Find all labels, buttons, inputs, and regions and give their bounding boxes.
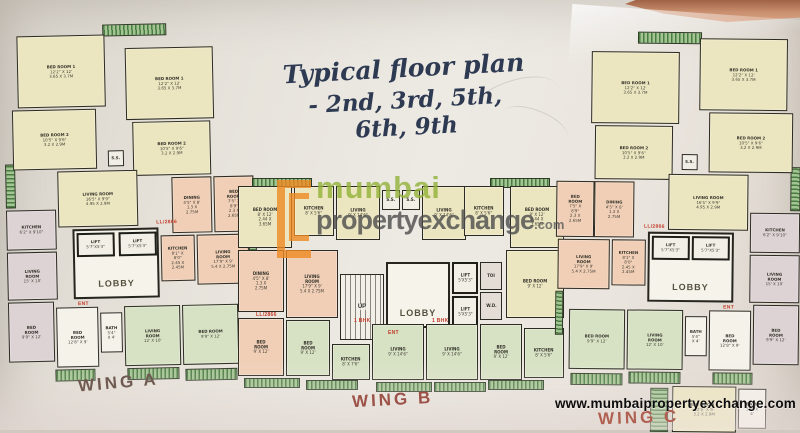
- room-label: BED ROOM 210'5" X 9'6"3.2 X 2.9M: [730, 135, 771, 150]
- room-bed-room: BED ROOM12'8" X 9': [56, 307, 99, 368]
- lift-label: LIFT5'7"X5'3": [128, 239, 147, 249]
- room-label: BED ROOM12'8" X 9': [720, 333, 740, 348]
- room-label: LIVING9' X 14'6": [434, 208, 455, 218]
- lift-shaft: LIFT5'7"X5'3": [692, 236, 730, 260]
- annotation-ent: ENT: [723, 304, 734, 310]
- room-label: BED ROOM8' X 12'2.44 X 3.65M: [252, 207, 278, 226]
- service-shaft-label: S.S.: [685, 160, 694, 165]
- service-shaft: S.S.: [382, 190, 400, 210]
- room-living-room: LIVING ROOM17'9" X 9'5.4 X 2.75M: [286, 250, 338, 318]
- annotation-bhk: 1 BHK: [354, 318, 371, 324]
- wing-c-plan: BED ROOM 112'2" X 12'3.65 X 3.7MBED ROOM…: [554, 25, 800, 433]
- balcony: [488, 380, 544, 390]
- balcony: [434, 382, 486, 392]
- room-label: LIVING ROOM12' X 10': [139, 328, 166, 343]
- service-shaft: S.S.: [682, 154, 698, 170]
- lift-shaft: LIFT5'7"X5'3": [652, 236, 690, 260]
- room-label: BED ROOM 112'2" X 12'3.65 X 3.7M: [722, 67, 765, 82]
- room-label: BED ROOM9' X 12': [521, 279, 549, 289]
- balcony: [790, 167, 800, 211]
- room-bed-room-1: BED ROOM 112'2" X 12'3.65 X 3.7M: [125, 46, 214, 120]
- room-bed-room: BED ROOM9'9" X 12': [753, 305, 800, 365]
- room-label: DINING4'5" X 8'1.3 X 2.75M: [250, 271, 272, 290]
- balcony: [712, 372, 752, 384]
- balcony: [5, 164, 16, 208]
- dry-area: W.D.: [480, 292, 502, 320]
- service-shaft-label: S.S.: [111, 156, 120, 161]
- room-bath: BATH5'4" X 4': [685, 316, 707, 356]
- website-url: www.mumbaipropertyexchange.com: [555, 396, 796, 411]
- lobby-label: LOBBY: [400, 308, 437, 318]
- room-bed-room: BED ROOM9'9" X 12': [182, 304, 239, 365]
- balcony: [244, 378, 300, 388]
- room-label: BED ROOM 112'2" X 12'3.65 X 3.7M: [614, 80, 657, 95]
- room-label: LIVING ROOM17'9" X 9'5.4 X 2.75M: [571, 254, 596, 273]
- balcony: [628, 371, 680, 384]
- room-dining: DINING4'5" X 8'1.3 X 2.75M: [594, 181, 635, 237]
- service-shaft: S.S.: [108, 150, 124, 166]
- room-label: BED ROOM9' X 12': [250, 340, 272, 354]
- toilet: TOI: [480, 262, 502, 290]
- room-label: LIVING ROOM16'5" X 9'9"4.95 X 2.9M: [689, 195, 728, 210]
- lift-label: LIFT5'7"X5'3": [701, 243, 720, 253]
- lobby-label: LOBBY: [672, 282, 709, 292]
- room-living-room: LIVING ROOM16'5" X 9'9"4.95 X 2.9M: [668, 174, 749, 231]
- room-label: KITCHEN8'1" X 8'0"2.45 X 2.45M: [619, 250, 639, 274]
- tiny-room-label: TOI: [486, 274, 496, 279]
- room-label: BED ROOM 210'5" X 9'6"3.2 X 2.9M: [615, 145, 653, 160]
- room-living-room: LIVING ROOM12' X 10': [124, 305, 181, 366]
- wing-b-label: WING B: [352, 388, 434, 412]
- room-label: LIVING9' X 14'6": [386, 347, 411, 357]
- annotation-bhk: 1 BHK: [432, 318, 449, 324]
- annotation-ll: LL/2866: [644, 224, 665, 230]
- room-label: KITCHEN8' X 7'6": [341, 357, 361, 367]
- room-label: KITCHEN6'2" X 9'10": [19, 225, 43, 235]
- room-living-room: LIVING ROOM16'5" X 9'9"4.95 X 2.9M: [57, 170, 138, 228]
- room-bed-room: BED ROOM7'5" X 8'9"2.3 X 2.65M: [556, 181, 595, 237]
- room-bed-room-2: BED ROOM 210'5" X 9'6"3.2 X 2.9M: [12, 109, 97, 171]
- lift-shaft: LIFT5'X5'3": [452, 262, 478, 294]
- service-shaft-label: S.S.: [407, 198, 416, 203]
- room-kitchen: KITCHEN8' X 5'6": [294, 186, 334, 236]
- room-label: BED ROOM8' X 12'2.44 X 3.65M: [524, 207, 550, 226]
- room-kitchen: KITCHEN8' X 7'6": [332, 344, 370, 380]
- room-living: LIVING9' X 14'6": [426, 324, 478, 380]
- room-bed-room: BED ROOM9'9" X 12': [8, 302, 55, 363]
- room-label: BED ROOM9'9" X 12': [583, 334, 610, 344]
- room-bed-room-2: BED ROOM 210'5" X 9'6"3.2 X 2.9M: [709, 112, 794, 173]
- room-label: LIVING ROOM17'9" X 9'5.4 X 2.75M: [300, 274, 325, 293]
- annotation-ent: ENT: [388, 330, 399, 336]
- room-bath: BATH5'4" X 4': [100, 312, 123, 352]
- annotation-ent: ENT: [78, 301, 89, 307]
- room-dining: DINING4'5" X 8'1.3 X 2.75M: [171, 176, 212, 233]
- balcony: [102, 23, 166, 36]
- balcony: [306, 380, 358, 390]
- room-label: LIVING9' X 14'6": [440, 347, 465, 357]
- room-label: BED ROOM9' X 12': [298, 341, 319, 355]
- room-bed-room-2: BED ROOM 210'5" X 9'6"3.2 X 2.9M: [132, 120, 211, 176]
- room-label: LIVING ROOM15' X 10': [20, 269, 44, 284]
- room-label: KITCHEN8' X 5'6": [534, 348, 554, 358]
- room-label: BED ROOM7'5" X 8'9"2.3 X 2.65M: [566, 194, 584, 223]
- annotation-ll: LL/2866: [156, 219, 177, 225]
- service-shaft: S.S.: [402, 190, 420, 210]
- room-label: BED ROOM 210'5" X 9'6"3.2 X 2.9M: [34, 132, 75, 147]
- room-bed-room-1: BED ROOM 112'2" X 12'3.65 X 3.7M: [699, 38, 788, 111]
- lift-label: LIFT5'X5'3": [458, 273, 472, 283]
- plan-title: Typical floor plan - 2nd, 3rd, 5th, 6th,…: [278, 48, 532, 148]
- room-bed-room-2: BED ROOM 210'5" X 9'6"3.2 X 2.9M: [595, 125, 674, 180]
- stairs-up-label: UP: [356, 304, 368, 310]
- room-living: LIVING9' X 14'6": [422, 186, 466, 240]
- room-label: BED ROOM12'8" X 9': [68, 330, 88, 345]
- plan-title-line2: - 2nd, 3rd, 5th, 6th, 9th: [280, 80, 532, 147]
- room-living-room: LIVING ROOM15' X 10': [749, 255, 799, 304]
- room-label: LIVING ROOM15' X 10': [762, 272, 786, 287]
- room-living: LIVING9' X 14'6": [336, 186, 380, 240]
- room-label: BATH5'4" X 4': [105, 325, 117, 340]
- room-label: LIVING9' X 14'6": [348, 208, 369, 218]
- room-bed-room: BED ROOM9' X 12': [238, 318, 284, 376]
- balcony: [570, 373, 622, 386]
- room-living-room: LIVING ROOM17'9" X 9'5.4 X 2.75M: [557, 239, 610, 290]
- room-bed-room-1: BED ROOM 112'2" X 12'3.65 X 3.7M: [16, 35, 105, 109]
- room-kitchen: KITCHEN8'1" X 8'0"2.45 X 2.45M: [611, 239, 645, 285]
- room-label: LIVING ROOM12' X 10': [641, 332, 668, 347]
- room-kitchen: KITCHEN6'2" X 9'10": [6, 210, 57, 251]
- room-label: KITCHEN6'2" X 9'10": [763, 228, 787, 238]
- service-shaft-label: S.S.: [387, 198, 396, 203]
- room-label: KITCHEN8' X 5'6": [474, 206, 494, 216]
- room-label: BED ROOM9'9" X 12': [197, 329, 224, 339]
- lift-shaft: LIFT5'7"X5'3": [76, 232, 114, 257]
- room-bed-room-1: BED ROOM 112'2" X 12'3.65 X 3.7M: [591, 51, 680, 124]
- room-label: LIVING ROOM16'5" X 9'9"4.95 X 2.9M: [78, 191, 117, 206]
- room-label: KITCHEN8' X 5'6": [304, 206, 324, 216]
- room-bed-room: BED ROOM9' X 12': [286, 320, 330, 376]
- photo-paper: Typical floor plan - 2nd, 3rd, 5th, 6th,…: [0, 0, 800, 430]
- balcony: [638, 32, 702, 45]
- balcony: [185, 368, 237, 381]
- lift-label: LIFT5'7"X5'3": [86, 240, 105, 250]
- room-living-room: LIVING ROOM12' X 10': [627, 309, 684, 370]
- wing-a-plan: BED ROOM 112'2" X 12'3.65 X 3.7MBED ROOM…: [2, 19, 260, 398]
- room-label: BED ROOM9' X 12': [491, 345, 511, 359]
- wing-b-plan: BED ROOM8' X 12'2.44 X 3.65MKITCHEN8' X …: [236, 178, 566, 390]
- room-label: BED ROOM 112'2" X 12'3.65 X 3.7M: [39, 64, 82, 79]
- hand-fingers: [625, 0, 800, 22]
- room-living-room: LIVING ROOM15' X 10': [7, 252, 58, 301]
- room-bed-room: BED ROOM8' X 12'2.44 X 3.65M: [238, 186, 292, 248]
- lift-shaft: LIFT5'7"X5'3": [118, 231, 156, 256]
- room-bed-room: BED ROOM9' X 12': [480, 324, 522, 380]
- room-label: BED ROOM 112'2" X 12'3.65 X 3.7M: [148, 76, 191, 91]
- room-label: BED ROOM 210'5" X 9'6"3.2 X 2.9M: [153, 141, 191, 156]
- tiny-room-label: W.D.: [486, 304, 496, 309]
- room-dining: DINING4'5" X 8'1.3 X 2.75M: [238, 250, 284, 312]
- room-label: KITCHEN8'1" X 8'0"2.45 X 2.45M: [168, 246, 188, 270]
- lift-label: LIFT5'7"X5'3": [661, 243, 680, 253]
- wing-a-label: WING A: [77, 370, 159, 397]
- room-label: BED ROOM9'9" X 12': [20, 325, 42, 340]
- lobby-label: LOBBY: [98, 278, 135, 289]
- lift-label: LIFT5'X5'3": [458, 307, 472, 317]
- room-kitchen: KITCHEN6'2" X 9'10": [750, 213, 800, 254]
- room-label: BED ROOM9'9" X 12': [765, 328, 787, 343]
- room-label: DINING4'5" X 8'1.3 X 2.75M: [182, 195, 201, 215]
- room-kitchen: KITCHEN8' X 5'6": [464, 186, 504, 236]
- room-bed-room: BED ROOM9'9" X 12': [569, 309, 626, 370]
- annotation-ll: LL/2866: [256, 312, 277, 318]
- room-label: LIVING ROOM17'9" X 9'5.4 X 2.75M: [210, 249, 235, 269]
- room-kitchen: KITCHEN8'1" X 8'0"2.45 X 2.45M: [161, 235, 196, 282]
- room-label: BATH5'4" X 4': [690, 329, 702, 344]
- room-bed-room: BED ROOM12'8" X 9': [709, 310, 752, 370]
- balcony: [555, 291, 563, 335]
- room-label: DINING4'5" X 8'1.3 X 2.75M: [605, 200, 624, 219]
